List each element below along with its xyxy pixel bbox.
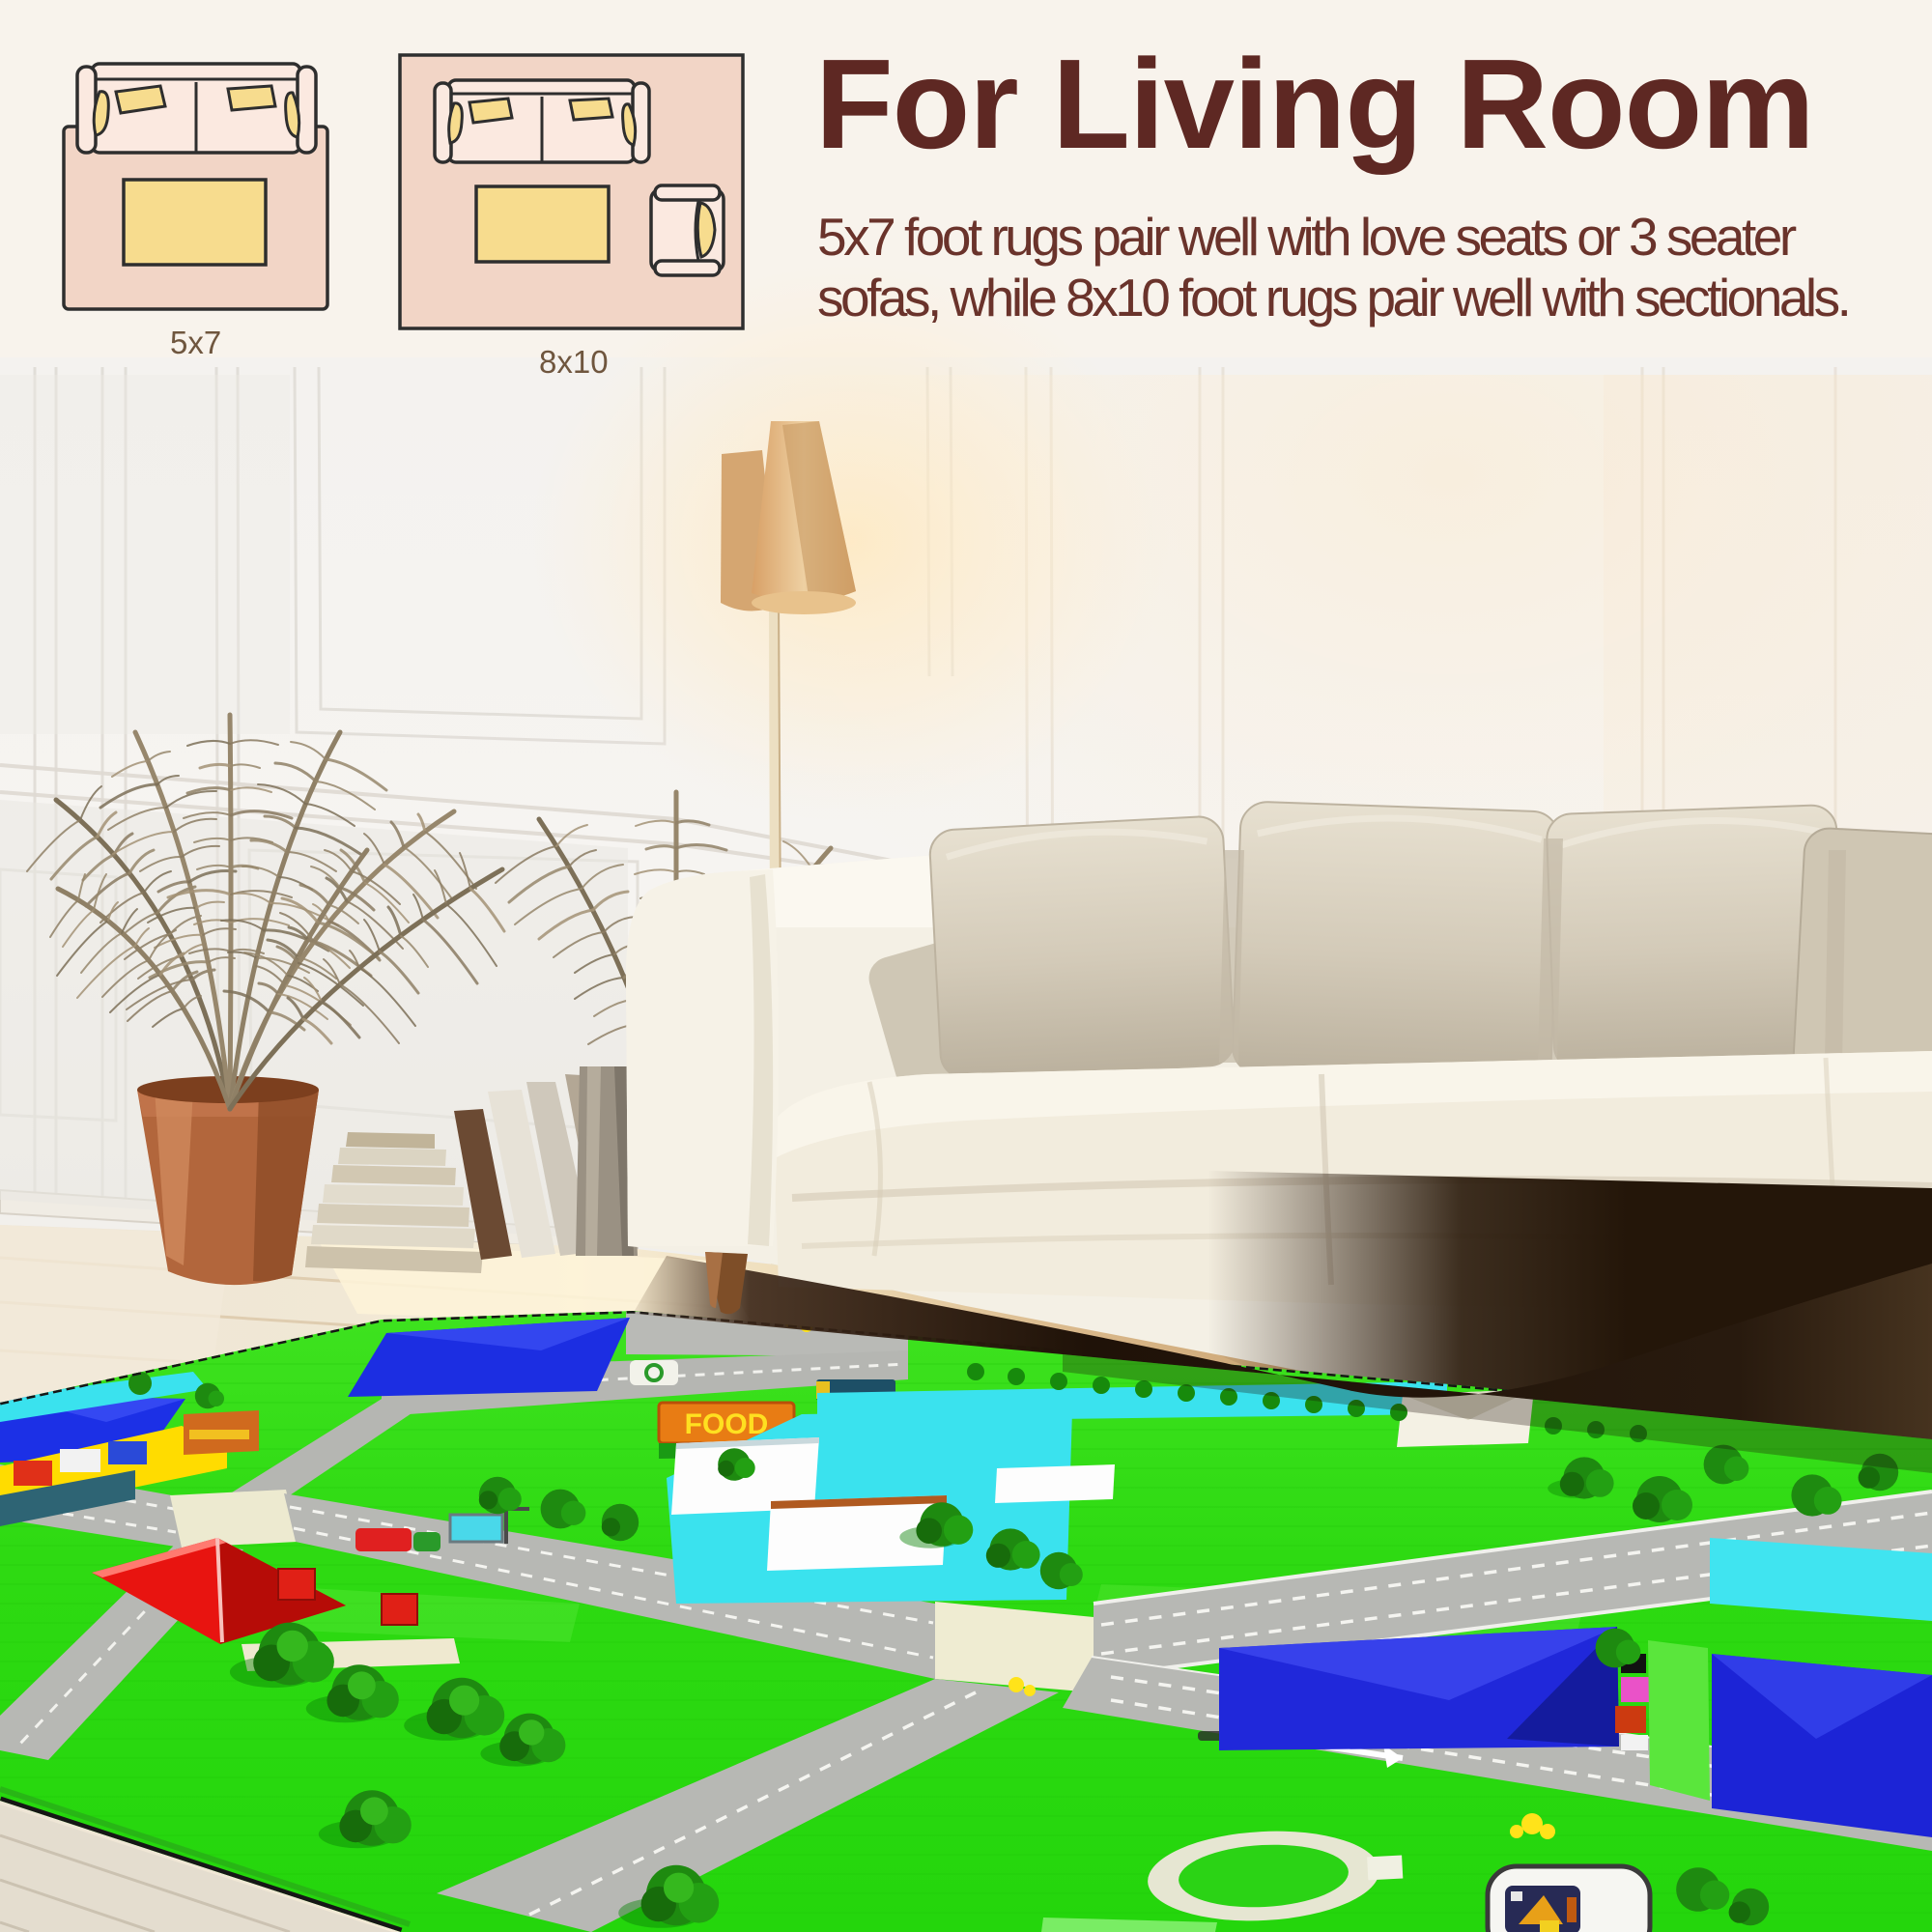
svg-text:FOOD: FOOD — [685, 1408, 769, 1440]
